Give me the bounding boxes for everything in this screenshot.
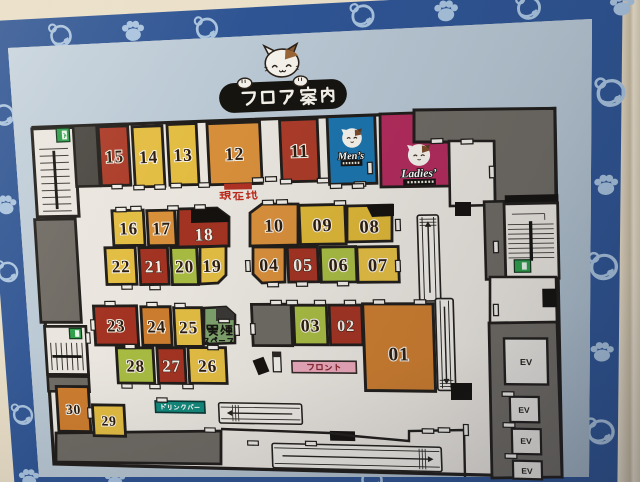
svg-text:05: 05: [293, 255, 314, 275]
svg-text:19: 19: [202, 256, 222, 276]
svg-text:17: 17: [152, 218, 172, 239]
svg-text:07: 07: [368, 255, 389, 275]
svg-text:06: 06: [328, 255, 349, 275]
svg-text:EV: EV: [521, 467, 533, 476]
svg-text:22: 22: [111, 257, 131, 276]
svg-text:20: 20: [175, 256, 195, 276]
svg-text:11: 11: [290, 141, 310, 162]
svg-text:02: 02: [337, 318, 355, 335]
svg-text:25: 25: [179, 318, 199, 337]
svg-text:21: 21: [144, 257, 164, 276]
svg-text:EV: EV: [518, 405, 530, 415]
svg-text:26: 26: [198, 357, 218, 376]
svg-text:16: 16: [119, 219, 139, 239]
svg-text:10: 10: [264, 215, 284, 235]
svg-text:09: 09: [312, 215, 333, 235]
svg-text:Ladies’: Ladies’: [400, 168, 437, 181]
svg-text:15: 15: [105, 146, 125, 167]
svg-text:28: 28: [126, 357, 145, 376]
svg-text:EV: EV: [520, 357, 532, 367]
svg-text:08: 08: [359, 217, 380, 237]
svg-text:03: 03: [300, 316, 320, 336]
svg-text:04: 04: [259, 255, 279, 275]
svg-text:12: 12: [224, 144, 244, 165]
svg-text:18: 18: [194, 224, 214, 244]
svg-text:24: 24: [147, 317, 167, 336]
svg-text:14: 14: [139, 146, 159, 167]
svg-text:23: 23: [106, 317, 125, 336]
svg-text:13: 13: [173, 145, 193, 166]
svg-text:30: 30: [66, 403, 82, 418]
svg-text:27: 27: [162, 357, 182, 376]
svg-text:EV: EV: [520, 436, 532, 446]
svg-text:29: 29: [101, 414, 117, 429]
svg-text:01: 01: [388, 344, 410, 365]
